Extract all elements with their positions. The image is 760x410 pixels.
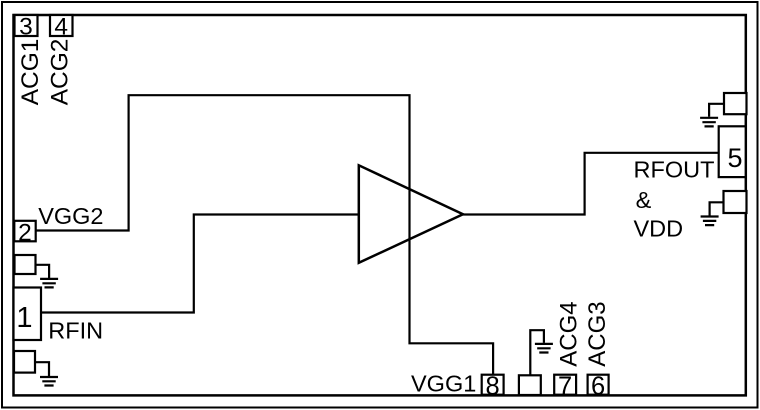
svg-text:VDD: VDD <box>634 216 684 242</box>
svg-text:ACG3: ACG3 <box>584 301 611 366</box>
svg-text:RFIN: RFIN <box>48 318 103 344</box>
svg-text:4: 4 <box>54 14 68 41</box>
svg-text:1: 1 <box>16 302 32 334</box>
svg-text:VGG2: VGG2 <box>38 203 103 229</box>
svg-text:ACG2: ACG2 <box>46 39 73 106</box>
svg-text:8: 8 <box>486 373 500 401</box>
svg-text:ACG1: ACG1 <box>17 39 44 106</box>
svg-text:ACG4: ACG4 <box>555 301 582 366</box>
svg-text:VGG1: VGG1 <box>411 371 476 397</box>
svg-text:6: 6 <box>591 373 605 401</box>
svg-text:5: 5 <box>727 143 742 173</box>
svg-text:2: 2 <box>18 220 32 247</box>
svg-text:7: 7 <box>558 373 572 401</box>
svg-text:RFOUT: RFOUT <box>634 157 715 183</box>
svg-text:&: & <box>636 187 652 213</box>
svg-text:3: 3 <box>19 14 33 41</box>
